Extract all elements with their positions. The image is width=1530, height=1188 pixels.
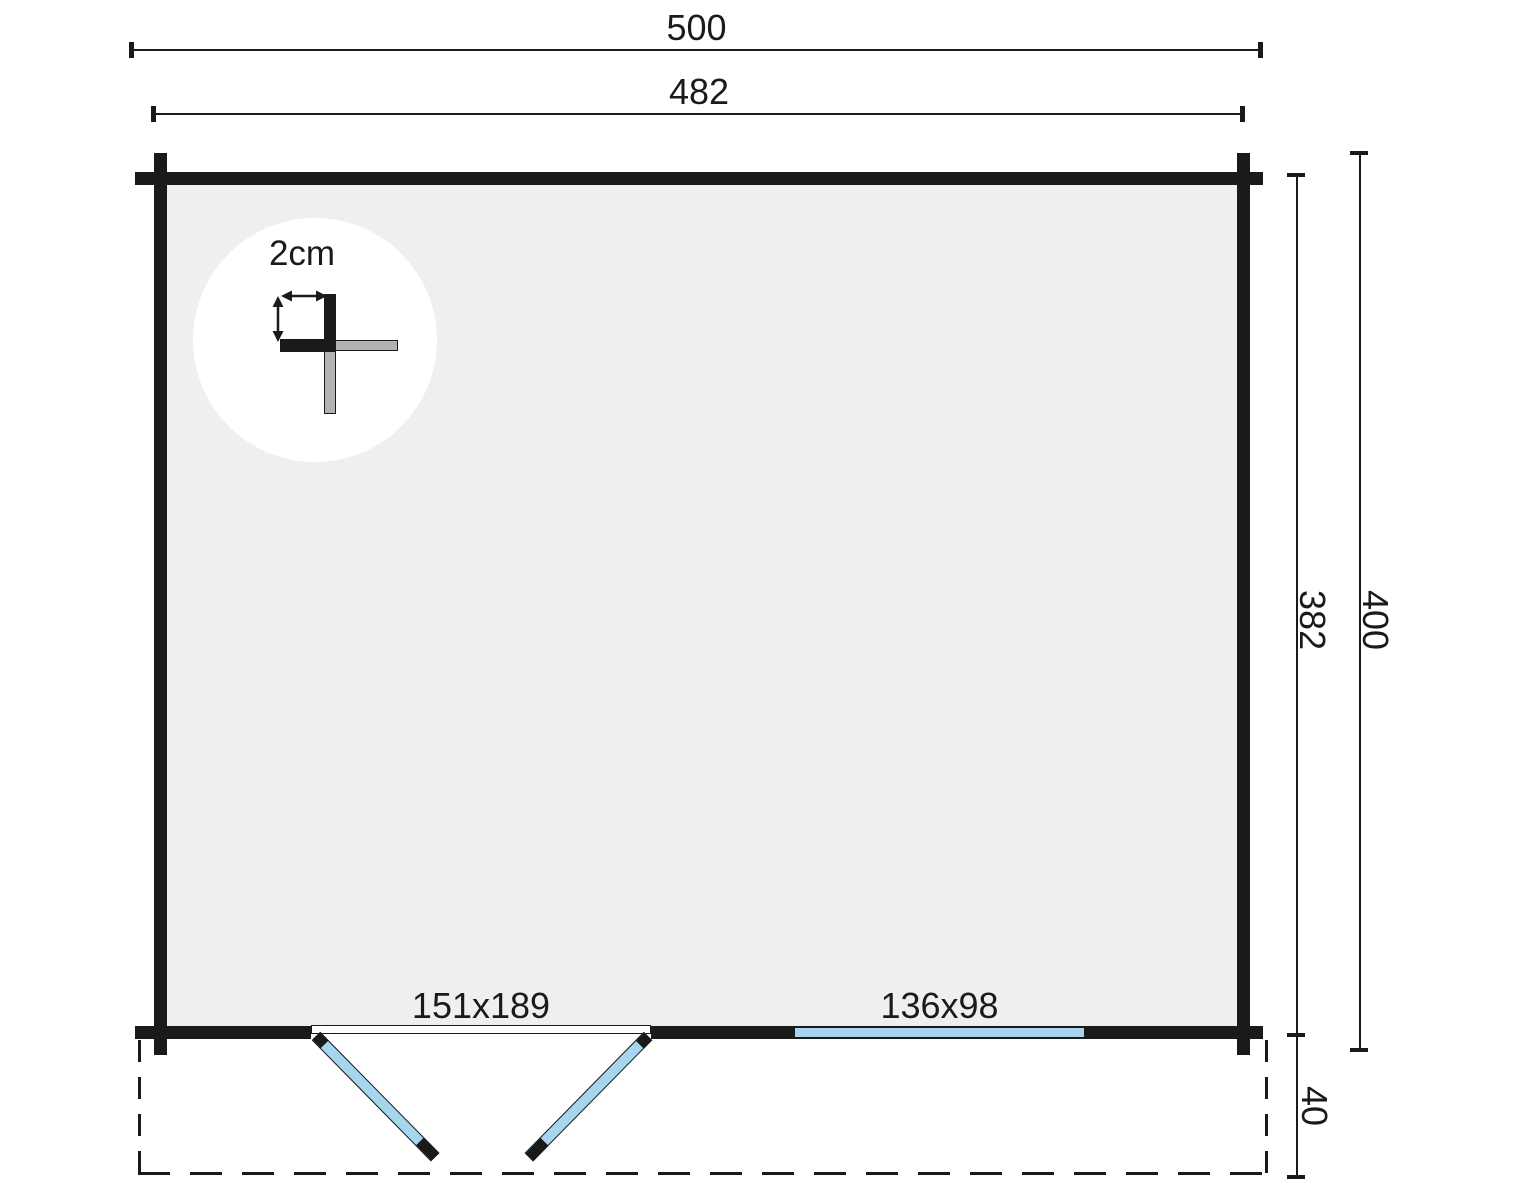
door-leaf-left	[312, 1032, 440, 1162]
door-leaf-right	[525, 1032, 653, 1162]
door-size-label: 151x189	[311, 988, 651, 1024]
wall-right	[1237, 153, 1250, 1055]
wall-top	[135, 172, 1263, 185]
vertical-double-arrow-icon	[271, 296, 285, 342]
door-threshold	[311, 1025, 651, 1034]
door-leaf-edge	[416, 1137, 439, 1160]
dimension-tick	[1350, 151, 1368, 155]
detail-log-end-bottom	[324, 351, 336, 414]
window-size-label: 136x98	[794, 988, 1085, 1024]
horizontal-double-arrow-icon	[281, 289, 327, 303]
terrace-outline-left	[138, 1040, 141, 1174]
dimension-line-inner-width	[153, 113, 1245, 115]
dimension-tick	[1287, 173, 1305, 177]
dimension-tick	[1258, 42, 1263, 58]
detail-log-end-right	[335, 340, 398, 351]
dimension-line-outer-width	[131, 49, 1262, 51]
dimension-tick	[1350, 1048, 1368, 1052]
wall-thickness-label: 2cm	[258, 236, 346, 272]
floor-plan-canvas: 500 482 2cm 151x189 136x98	[0, 0, 1530, 1188]
dimension-tick	[1240, 106, 1245, 122]
dimension-tick	[151, 106, 156, 122]
wall-bottom	[135, 1026, 1263, 1039]
door-leaf-edge	[525, 1138, 548, 1161]
terrace-outline-bottom	[138, 1172, 1269, 1175]
window-glazing	[794, 1027, 1085, 1038]
dimension-tick	[129, 42, 134, 58]
dimension-label-outer-width: 500	[131, 10, 1262, 46]
dimension-label-inner-width: 482	[153, 74, 1245, 110]
wall-left	[154, 153, 167, 1055]
dimension-tick	[1287, 1175, 1305, 1179]
dimension-label-inner-depth: 382	[1294, 565, 1330, 675]
terrace-outline-right	[1265, 1040, 1268, 1174]
dimension-label-terrace-depth: 40	[1296, 1078, 1332, 1134]
dimension-label-outer-depth: 400	[1357, 565, 1393, 675]
